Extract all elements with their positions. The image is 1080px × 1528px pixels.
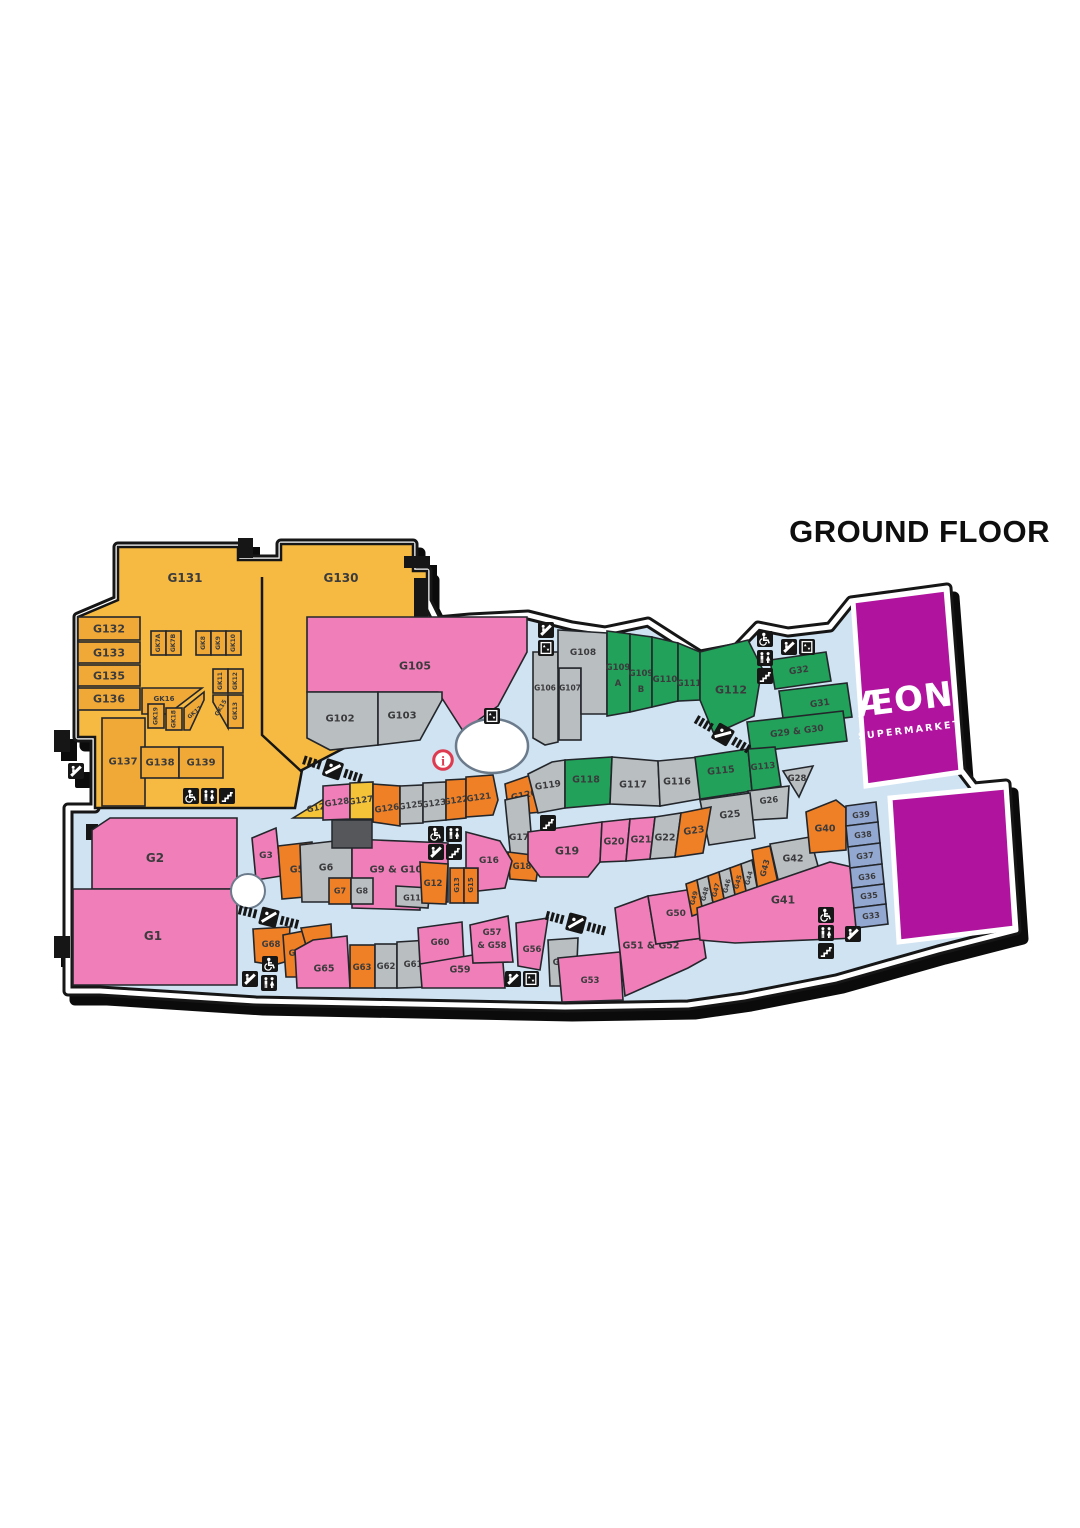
unit-GK7B: GK7B — [166, 631, 181, 655]
atrium-opening — [456, 719, 528, 773]
entrance-notch — [238, 538, 253, 558]
unit-G130: G130 — [324, 571, 359, 585]
unit-G103-label: G103 — [387, 711, 416, 722]
unit-G38-label: G38 — [854, 830, 873, 841]
unit-G62: G62 — [375, 944, 397, 988]
unit-G3-label: G3 — [259, 851, 273, 861]
unit-G131-label: G131 — [168, 571, 203, 585]
stairs-icon — [818, 943, 834, 959]
unit-G109A-sublabel: A — [615, 679, 622, 689]
unit-G138-label: G138 — [145, 758, 174, 769]
wheelchair-access-icon — [262, 956, 278, 972]
unit-G53: G53 — [558, 952, 623, 1002]
unit-G127: G127 — [348, 782, 374, 819]
unit-G13: G13 — [450, 868, 464, 903]
unit-G22-label: G22 — [654, 833, 675, 844]
unit-G12: G12 — [420, 862, 448, 904]
unit-G20: G20 — [600, 819, 630, 862]
entrance-notch — [54, 936, 70, 958]
entrance-notch — [54, 730, 70, 752]
unit-G113: G113 — [748, 747, 781, 791]
unit-G106-label: G106 — [534, 684, 556, 693]
unit-G40-label: G40 — [814, 824, 835, 835]
unit-G116: G116 — [658, 757, 700, 806]
unit-G8-label: G8 — [356, 887, 369, 896]
unit-G9-10-label: G9 & G10 — [370, 865, 423, 876]
escalator-icon — [781, 639, 797, 655]
unit-G109B-sublabel: B — [638, 685, 644, 695]
unit-GK12: GK12 — [228, 669, 243, 693]
unit-G68-label: G68 — [262, 940, 281, 950]
unit-G130-label: G130 — [324, 571, 359, 585]
unit-G59-label: G59 — [449, 965, 470, 976]
unit-G62-label: G62 — [377, 962, 396, 972]
unit-GK11-label: GK11 — [217, 672, 224, 690]
unit-G2-label: G2 — [146, 851, 164, 865]
wheelchair-access-icon — [818, 907, 834, 923]
unit-G121: G121 — [466, 775, 498, 817]
unit-G8: G8 — [351, 878, 373, 904]
unit-G110-label: G110 — [653, 675, 678, 685]
unit-G136: G136 — [78, 688, 140, 710]
information-icon — [434, 751, 452, 769]
unit-GK12-label: GK12 — [232, 672, 239, 690]
elevator-icon — [538, 640, 554, 656]
stairs-icon — [219, 788, 235, 804]
elevator-icon — [484, 708, 500, 724]
unit-G63: G63 — [350, 945, 375, 988]
unit-G102: G102 — [307, 692, 378, 750]
unit-G60-label: G60 — [431, 938, 450, 948]
stairs-icon — [446, 844, 462, 860]
unit-G37-label: G37 — [856, 851, 875, 862]
unit-GK13: GK13 — [228, 695, 243, 728]
wheelchair-access-icon — [428, 826, 444, 842]
stairs-icon — [540, 815, 556, 831]
unit-G117-label: G117 — [619, 780, 647, 791]
unit-GK7A: GK7A — [151, 631, 166, 655]
toilets-icon — [261, 975, 277, 991]
unit-GK18: GK18 — [166, 708, 182, 730]
unit-G116-label: G116 — [663, 777, 691, 788]
unit-G133-label: G133 — [93, 647, 125, 660]
unit-G15-label: G15 — [467, 877, 475, 893]
unit-G25-label: G25 — [719, 808, 741, 821]
unit-G7: G7 — [329, 878, 351, 904]
unit-G133: G133 — [78, 642, 140, 663]
unit-G109B: G109B — [629, 634, 654, 712]
unit-G18-label: G18 — [513, 862, 532, 872]
unit-G3: G3 — [252, 828, 281, 880]
unit-G53-label: G53 — [581, 976, 600, 986]
elevator-icon — [799, 639, 815, 655]
unit-G15: G15 — [464, 868, 478, 903]
wheelchair-access-icon — [757, 631, 773, 647]
unit-G125: G125 — [398, 785, 424, 824]
unit-G132: G132 — [78, 617, 140, 640]
escalator-icon — [505, 971, 521, 987]
unit-G33: G33 — [854, 904, 888, 928]
unit-G126: G126 — [373, 784, 400, 826]
unit-GK19: GK19 — [148, 704, 164, 728]
unit-G39-label: G39 — [852, 810, 871, 821]
unit-G35-label: G35 — [860, 891, 879, 902]
unit-G65-label: G65 — [313, 964, 334, 975]
unit-GK7B-label: GK7B — [170, 633, 177, 652]
unit-GK7A-label: GK7A — [155, 633, 162, 652]
unit-G137: G137 — [102, 718, 145, 806]
unit-G63-label: G63 — [353, 963, 372, 973]
escalator-icon — [428, 844, 444, 860]
unit-G135-label: G135 — [93, 670, 125, 683]
unit-G131: G131 — [168, 571, 203, 585]
unit-G12-label: G12 — [424, 879, 443, 889]
toilets-icon — [818, 925, 834, 941]
unit-G41-label: G41 — [771, 894, 795, 907]
unit-G109A: G109A — [606, 631, 631, 716]
unit-G42-label: G42 — [782, 854, 803, 865]
toilets-icon — [201, 788, 217, 804]
unit-G111-label: G111 — [677, 679, 702, 689]
unit-G109A-label: G109 — [606, 663, 631, 673]
wheelchair-access-icon — [183, 788, 199, 804]
anchor-store-aeon-lower — [890, 787, 1015, 942]
unit-G28-label: G28 — [788, 774, 807, 784]
unit-G136-label: G136 — [93, 693, 125, 706]
unit-GK11: GK11 — [213, 669, 228, 693]
unit-G1: G1 — [73, 889, 237, 985]
unit-G117: G117 — [610, 757, 660, 806]
unit-GK9: GK9 — [211, 631, 226, 655]
escalator-icon — [68, 763, 84, 779]
elevator-icon — [523, 971, 539, 987]
escalator-icon — [845, 926, 861, 942]
unit-G2: G2 — [92, 818, 237, 889]
unit-G57-58: G57& G58 — [470, 916, 513, 963]
unit-G139-label: G139 — [186, 758, 215, 769]
escalator-icon — [242, 971, 258, 987]
unit-GK9-label: GK9 — [215, 636, 222, 650]
unit-G19: G19 — [528, 822, 602, 877]
mall-floorplan: i ÆON SUPERMARKET G131G130G132G133G135G1… — [0, 0, 1080, 1528]
unit-G107-label: G107 — [559, 684, 581, 693]
unit-G107: G107 — [559, 668, 581, 740]
unit-GK10-label: GK10 — [230, 634, 237, 652]
toilets-icon — [446, 826, 462, 842]
unit-G1-label: G1 — [144, 929, 162, 943]
entrance-notch — [404, 556, 430, 568]
unit-G21-label: G21 — [630, 835, 651, 846]
unit-G139: G139 — [179, 747, 223, 778]
stairs-icon — [757, 668, 773, 684]
unit-G118: G118 — [565, 757, 612, 808]
unit-G33-label: G33 — [862, 911, 881, 922]
unit-G26-label: G26 — [759, 795, 779, 807]
unit-G111: G111 — [677, 643, 702, 701]
unit-G36-label: G36 — [858, 872, 877, 883]
unit-G7-label: G7 — [334, 887, 346, 896]
unit-GK16-label: GK16 — [154, 695, 175, 703]
unit-G137-label: G137 — [108, 757, 137, 768]
unit-G135: G135 — [78, 665, 140, 686]
unit-G19-label: G19 — [555, 845, 579, 858]
unit-GK8-label: GK8 — [200, 636, 207, 650]
unit-G102-label: G102 — [325, 714, 354, 725]
escalator-icon — [538, 622, 554, 638]
unit-G50-label: G50 — [666, 909, 686, 919]
unit-G106: G106 — [533, 652, 558, 745]
unit-G108-label: G108 — [570, 648, 596, 658]
service-block — [332, 820, 372, 848]
unit-G16-label: G16 — [479, 856, 499, 866]
unit-G26: G26 — [748, 786, 789, 820]
atrium-opening-small — [231, 874, 265, 908]
mall-directory-page: { "title": "GROUND FLOOR", "anchor_store… — [0, 0, 1080, 1528]
unit-G20-label: G20 — [603, 837, 624, 848]
unit-GK13-label: GK13 — [232, 702, 239, 720]
unit-G138: G138 — [141, 747, 179, 778]
unit-GK18-label: GK18 — [171, 710, 178, 728]
unit-G13-label: G13 — [453, 877, 461, 893]
toilets-icon — [757, 650, 773, 666]
unit-G109B-label: G109 — [629, 669, 654, 679]
unit-G128: G128 — [323, 784, 350, 820]
unit-G122: G122 — [443, 779, 469, 820]
unit-GK10: GK10 — [226, 631, 241, 655]
unit-GK8: GK8 — [196, 631, 211, 655]
unit-G11-label: G11 — [403, 894, 421, 903]
unit-G56-label: G56 — [523, 945, 542, 955]
unit-G57-58-label: G57 — [483, 928, 502, 938]
unit-GK19-label: GK19 — [153, 707, 160, 725]
unit-G57-58-sublabel: & G58 — [477, 941, 506, 951]
unit-G105-label: G105 — [399, 660, 431, 673]
unit-G17-label: G17 — [509, 833, 529, 843]
unit-G118-label: G118 — [572, 775, 600, 786]
unit-G110: G110 — [652, 637, 678, 707]
unit-G132-label: G132 — [93, 623, 125, 636]
unit-G6-label: G6 — [319, 863, 334, 874]
unit-G112-label: G112 — [715, 684, 747, 697]
unit-G115: G115 — [695, 749, 752, 799]
